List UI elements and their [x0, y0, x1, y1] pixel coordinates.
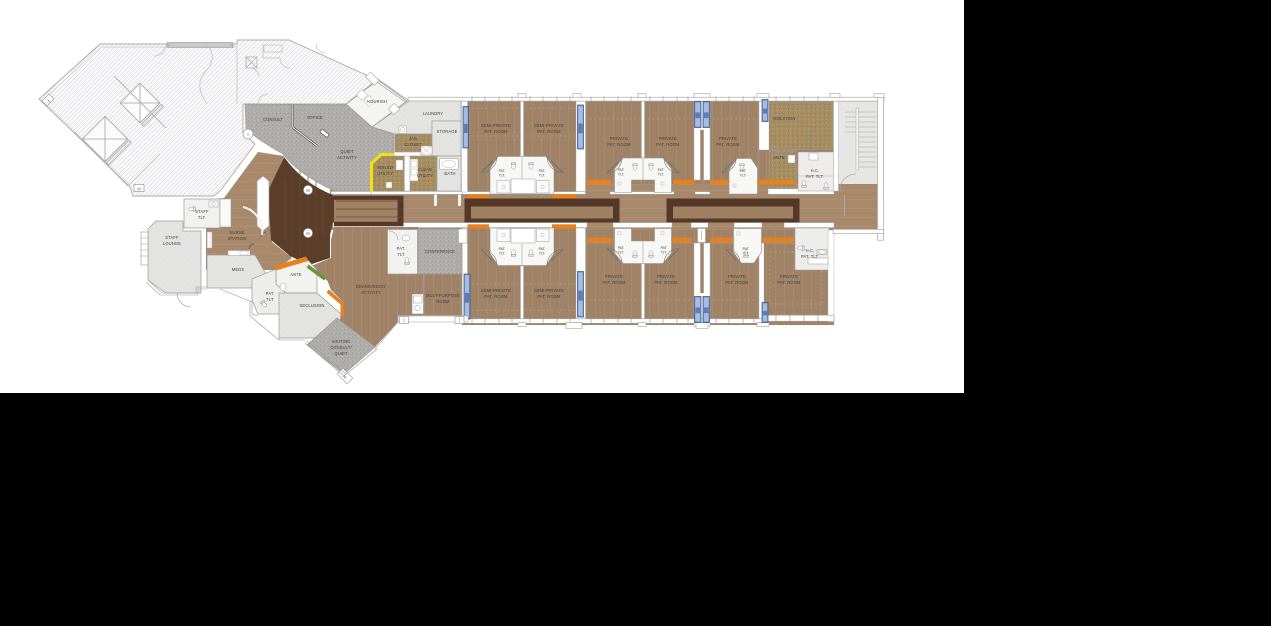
svg-text:STATION: STATION [228, 236, 246, 241]
svg-text:PRIVATE: PRIVATE [728, 274, 746, 279]
svg-text:SEMI-PRIVATE: SEMI-PRIVATE [534, 123, 564, 128]
svg-text:PAT. ROOM: PAT. ROOM [725, 280, 749, 285]
svg-text:MEDS: MEDS [232, 267, 245, 272]
svg-text:PRIVATE: PRIVATE [659, 136, 677, 141]
svg-text:ACTIVITY: ACTIVITY [361, 290, 381, 295]
svg-text:PAT.: PAT. [499, 247, 506, 251]
svg-text:PAT. TLT.: PAT. TLT. [801, 254, 819, 259]
svg-text:PAT. ROOM: PAT. ROOM [656, 142, 680, 147]
svg-text:TLT.: TLT. [618, 173, 624, 177]
svg-text:LOUNGE: LOUNGE [163, 241, 181, 246]
svg-text:PAT. ROOM: PAT. ROOM [716, 142, 740, 147]
svg-text:TLT.: TLT. [539, 174, 545, 178]
svg-text:TLT.: TLT. [743, 252, 749, 256]
svg-text:ANTE: ANTE [290, 272, 302, 277]
svg-text:NOURISH: NOURISH [367, 99, 387, 104]
svg-text:PAT.: PAT. [743, 247, 750, 251]
svg-text:H: H [137, 187, 140, 192]
svg-text:TLT: TLT [397, 252, 405, 257]
svg-text:JAN: JAN [409, 136, 417, 141]
svg-text:PAT. ROOM: PAT. ROOM [537, 129, 561, 134]
svg-text:PAT.: PAT. [499, 169, 506, 173]
svg-text:SEMI-PRIVATE: SEMI-PRIVATE [481, 123, 511, 128]
svg-text:PAT. ROOM: PAT. ROOM [484, 294, 508, 299]
svg-text:SEMI-PRIVATE: SEMI-PRIVATE [534, 288, 564, 293]
svg-text:ROOM: ROOM [436, 299, 450, 304]
svg-text:STAFF: STAFF [165, 235, 179, 240]
svg-text:PAT. ROOM: PAT. ROOM [607, 142, 631, 147]
svg-text:TLT.: TLT. [658, 173, 664, 177]
svg-text:STAFF: STAFF [195, 209, 209, 214]
svg-text:QUIET: QUIET [334, 351, 348, 356]
svg-text:PRIVATE: PRIVATE [657, 274, 675, 279]
svg-text:UTILITY: UTILITY [377, 171, 393, 176]
svg-text:PAT.: PAT. [661, 246, 668, 250]
svg-text:STORAGE: STORAGE [437, 129, 458, 134]
svg-text:PRIVATE: PRIVATE [605, 274, 623, 279]
svg-text:ACTIVITY: ACTIVITY [337, 155, 357, 160]
svg-text:TLT.: TLT. [618, 251, 624, 255]
svg-text:PAT. ROOM: PAT. ROOM [654, 280, 678, 285]
svg-text:PAT.: PAT. [740, 169, 747, 173]
svg-text:SEMI-PRIVATE: SEMI-PRIVATE [481, 288, 511, 293]
svg-text:OFFICE: OFFICE [307, 115, 323, 120]
svg-text:PRIVATE: PRIVATE [719, 136, 737, 141]
svg-text:H.C.: H.C. [811, 168, 820, 173]
svg-text:CLOSET: CLOSET [404, 142, 422, 147]
svg-text:TLT.: TLT. [499, 174, 505, 178]
svg-text:PAT.: PAT. [658, 168, 665, 172]
svg-text:PAT. ROOM: PAT. ROOM [484, 129, 508, 134]
svg-text:TLT: TLT [266, 297, 274, 302]
svg-text:MULT-PURPOSE: MULT-PURPOSE [426, 293, 460, 298]
svg-text:NURSE: NURSE [229, 230, 244, 235]
svg-text:TLT.: TLT. [661, 251, 667, 255]
svg-text:H: H [306, 231, 309, 236]
svg-text:DINING/NOISY: DINING/NOISY [356, 284, 386, 289]
svg-text:PAT. ROOM: PAT. ROOM [602, 280, 626, 285]
svg-text:CONFERENCE: CONFERENCE [425, 249, 455, 254]
svg-text:ISOLATION: ISOLATION [773, 116, 796, 121]
svg-text:BATH: BATH [444, 171, 455, 176]
svg-text:UTILITY: UTILITY [417, 173, 433, 178]
svg-text:PAT.: PAT. [266, 291, 275, 296]
svg-text:PAT.: PAT. [618, 246, 625, 250]
svg-text:I: I [247, 132, 248, 137]
svg-text:CONSULT: CONSULT [263, 117, 284, 122]
svg-text:CONSULT/: CONSULT/ [330, 345, 352, 350]
svg-text:PAT. ROOM: PAT. ROOM [777, 280, 801, 285]
svg-text:PRIVATE: PRIVATE [780, 274, 798, 279]
svg-text:PAT. ROOM: PAT. ROOM [537, 294, 561, 299]
svg-text:TLT.: TLT. [499, 252, 505, 256]
svg-text:ANTE: ANTE [773, 155, 785, 160]
svg-text:SOILED: SOILED [377, 165, 393, 170]
svg-text:TLT.: TLT. [740, 174, 746, 178]
svg-text:PAT.: PAT. [618, 168, 625, 172]
svg-text:TLT.: TLT. [539, 252, 545, 256]
svg-text:PRIVATE: PRIVATE [610, 136, 628, 141]
svg-text:PAT.: PAT. [539, 169, 546, 173]
svg-text:PAT. TLT.: PAT. TLT. [806, 174, 824, 179]
svg-text:SECLUSION: SECLUSION [299, 303, 324, 308]
svg-text:H: H [306, 188, 309, 193]
svg-text:LAUNDRY: LAUNDRY [423, 111, 444, 116]
svg-text:VISITOR/: VISITOR/ [332, 339, 351, 344]
svg-text:QUIET: QUIET [340, 149, 354, 154]
svg-text:TLT.: TLT. [198, 215, 206, 220]
svg-text:PAT.: PAT. [397, 246, 406, 251]
svg-text:H.C.: H.C. [806, 248, 815, 253]
svg-text:PAT.: PAT. [539, 247, 546, 251]
svg-text:CLEAN: CLEAN [418, 167, 432, 172]
